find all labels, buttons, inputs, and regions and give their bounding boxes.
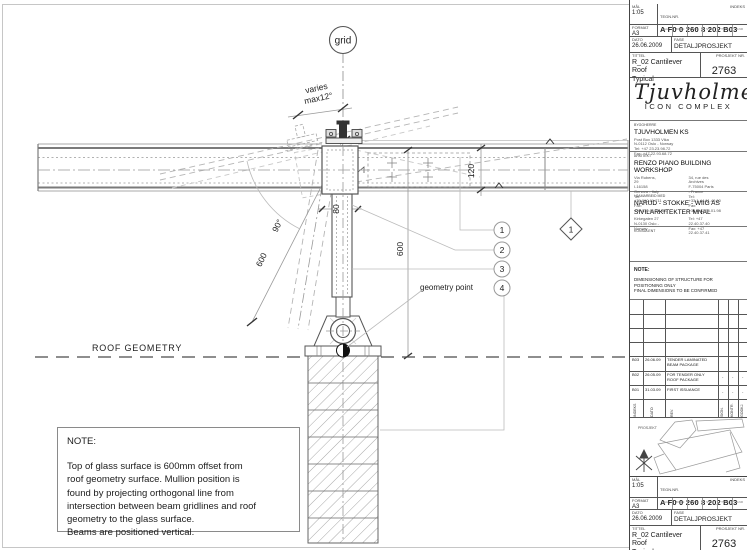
revision-index: B02 xyxy=(632,373,639,378)
scale-cell: MÅL 1:05 xyxy=(630,4,658,25)
grid-axis-label: 1 xyxy=(569,225,574,235)
dim-600-vertical xyxy=(404,147,412,359)
grid-axis-diamond: 1 xyxy=(560,218,582,240)
roof-geometry-label: ROOF GEOMETRY xyxy=(92,343,182,353)
glass-clamp xyxy=(326,121,362,144)
project-no-label: PROSJEKT NR. xyxy=(703,527,745,532)
code-cells: FAG BYGN ETG SYST TYPE LNR xyxy=(658,25,747,37)
revision-table: B03 26.06.09 TENDER LAMINATED BEAM PACKA… xyxy=(630,300,747,418)
index-label: INDEKS xyxy=(730,5,745,10)
rev-header-kontr: KONTR. xyxy=(730,400,734,417)
rev-header-dato: DATO xyxy=(650,400,654,417)
logo-wordmark: Tjuvholmen xyxy=(634,80,743,104)
revision-sign: - xyxy=(722,375,723,380)
code-label: LNR xyxy=(733,498,747,509)
revision-date: 26.05.09 xyxy=(645,373,661,378)
title-cell: TITTEL R_02 Cantilever Roof Typical xyxy=(630,526,701,550)
geometry-point-marker xyxy=(337,344,350,357)
code-label: SYST xyxy=(703,498,718,509)
callout-3: 3 xyxy=(494,261,510,277)
callout-1: 1 xyxy=(494,222,510,238)
site-plan: PROSJEKT xyxy=(630,418,747,476)
callout-2: 2 xyxy=(494,242,510,258)
note-line: roof geometry surface. Mullion position … xyxy=(67,473,290,486)
collaborator-name: NARUD - STOKKE - WIIG AS xyxy=(634,200,743,207)
callout-4-label: 4 xyxy=(500,283,505,293)
code-label: BYGN xyxy=(673,25,688,36)
date-value: 26.06.2009 xyxy=(632,516,669,522)
project-no-cell: PROSJEKT NR. 2763 xyxy=(701,53,747,77)
date-cell: DATO 26.06.2009 xyxy=(630,510,672,526)
drawing-no-cell: TEGN.NR. INDEKS A F0 0 260 8 202 B03 xyxy=(658,4,747,25)
project-number: 2763 xyxy=(703,538,745,550)
tb-note-line: FINAL DIMENSIONS TO BE CONFIRMED xyxy=(634,288,743,294)
code-label: TYPE xyxy=(718,25,733,36)
logo-block: Tjuvholmen ICON COMPLEX xyxy=(630,77,747,121)
project-number: 2763 xyxy=(703,65,745,77)
collaborator-name-2: SIVILARKITEKTER MNAL xyxy=(634,209,743,216)
phase-cell: FASE DETALJPROSJEKT xyxy=(672,510,747,526)
date-value: 26.06.2009 xyxy=(632,43,669,49)
client-section: BYGGHERRE TJUVHOLMEN KS Post Box 1333 Vi… xyxy=(630,121,747,152)
scale-value: 1:05 xyxy=(632,10,655,16)
revision-desc: FOR TENDER ONLY ROOF PACKAGE xyxy=(667,373,717,382)
client-label: BYGGHERRE xyxy=(634,123,743,128)
tb-note-title: NOTE: xyxy=(634,267,743,273)
title-cell: TITTEL R_02 Cantilever Roof Typical xyxy=(630,53,701,77)
phase-value: DETALJPROSJEKT xyxy=(674,43,745,50)
ghost-clamp xyxy=(280,120,324,150)
format-cell: FORMAT A3 xyxy=(630,25,658,37)
revision-desc: TENDER LAMINATED BEAM PACKAGE xyxy=(667,358,717,367)
code-label: TYPE xyxy=(718,498,733,509)
revision-date: 31.03.09 xyxy=(645,388,661,393)
rev-header-rev: REV. xyxy=(670,400,674,417)
callout-2-label: 2 xyxy=(500,245,505,255)
title-block: MÅL 1:05 TEGN.NR. INDEKS A F0 0 260 8 20… xyxy=(629,0,747,550)
dim-600-vertical-label: 600 xyxy=(395,242,405,256)
dim-600-incline-label: 600 xyxy=(254,251,269,268)
phase-value: DETALJPROSJEKT xyxy=(674,516,745,523)
code-label: BYGN xyxy=(673,498,688,509)
sheet-title-line1: R_02 Cantilever Roof xyxy=(632,59,698,76)
note-line: found by projecting orthogonal line from xyxy=(67,487,290,500)
geometry-point-label: geometry point xyxy=(420,283,474,292)
code-label: ETG xyxy=(688,498,703,509)
dim-120-label: 120 xyxy=(466,164,476,178)
revision-desc: FIRST ISSUANCE xyxy=(667,388,717,393)
phase-cell: FASE DETALJPROSJEKT xyxy=(672,37,747,53)
logo-subtitle: ICON COMPLEX xyxy=(634,102,743,111)
rev-header-indeks: INDEKS xyxy=(633,400,637,417)
consultant-section: KONSULENT xyxy=(630,227,747,262)
callout-leaders xyxy=(347,157,571,430)
revision-date: 26.06.09 xyxy=(645,358,661,363)
format-value: A3 xyxy=(632,31,655,37)
date-cell: DATO 26.06.2009 xyxy=(630,37,672,53)
rev-header-sign: SIGN. xyxy=(720,400,724,417)
collaborator-section: I SAMARBEID MED NARUD - STOKKE - WIIG AS… xyxy=(630,192,747,227)
collaborator-label: I SAMARBEID MED xyxy=(634,194,743,199)
code-label: LNR xyxy=(733,25,747,36)
revision-sign: - xyxy=(722,390,723,395)
drawing-no-cell: TEGN.NR. INDEKS A F0 0 260 8 202 B03 xyxy=(658,477,747,498)
note-line: intersection between beam gridlines and … xyxy=(67,500,290,513)
revision-godkj: - xyxy=(742,375,743,380)
architect-name: RENZO PIANO BUILDING WORKSHOP xyxy=(634,160,743,174)
revision-kontr: - xyxy=(732,375,733,380)
note-line: Beams are positioned vertical. xyxy=(67,526,290,539)
revision-godkj: - xyxy=(742,390,743,395)
drawing-no-label: TEGN.NR. xyxy=(660,487,679,492)
beam-left xyxy=(38,144,322,191)
consultant-label: KONSULENT xyxy=(634,229,743,234)
revision-index: B03 xyxy=(632,358,639,363)
north-arrow-icon xyxy=(636,450,652,472)
code-label: FAG xyxy=(658,25,673,36)
varies-dim xyxy=(288,104,352,119)
format-value: A3 xyxy=(632,504,655,510)
project-no-cell: PROSJEKT NR. 2763 xyxy=(701,526,747,550)
code-label: FAG xyxy=(658,498,673,509)
title-block-foot: MÅL 1:05 TEGN.NR. INDEKS A F0 0 260 8 20… xyxy=(630,476,747,550)
beam-right xyxy=(358,140,628,191)
scale-value: 1:05 xyxy=(632,483,655,489)
code-cells: FAG BYGN ETG SYST TYPE LNR xyxy=(658,498,747,510)
callout-1-label: 1 xyxy=(500,225,505,235)
grid-bubble-label: grid xyxy=(335,36,352,47)
map-label: PROSJEKT xyxy=(638,426,657,430)
architect-section: ARKITEKT RENZO PIANO BUILDING WORKSHOP V… xyxy=(630,152,747,192)
note-line: Top of glass surface is 600mm offset fro… xyxy=(67,460,290,473)
angle-90-label: 90° xyxy=(270,218,285,234)
scale-cell: MÅL 1:05 xyxy=(630,477,658,498)
drawing-no-label: TEGN.NR. xyxy=(660,14,679,19)
index-label: INDEKS xyxy=(730,478,745,483)
revision-index: B01 xyxy=(632,388,639,393)
rev-header-godkj: GODKJ. xyxy=(740,400,744,417)
dim-80-label: 80 xyxy=(331,204,341,214)
sheet-title-line1: R_02 Cantilever Roof xyxy=(632,532,698,549)
note-line: geometry to the glass surface. xyxy=(67,513,290,526)
code-label: ETG xyxy=(688,25,703,36)
client-name: TJUVHOLMEN KS xyxy=(634,129,743,136)
callout-3-label: 3 xyxy=(500,264,505,274)
title-block-head: MÅL 1:05 TEGN.NR. INDEKS A F0 0 260 8 20… xyxy=(630,4,747,77)
architect-label: ARKITEKT xyxy=(634,154,743,159)
drawing-note-box: NOTE: Top of glass surface is 600mm offs… xyxy=(57,427,300,532)
code-label: SYST xyxy=(703,25,718,36)
project-no-label: PROSJEKT NR. xyxy=(703,54,745,59)
format-cell: FORMAT A3 xyxy=(630,498,658,510)
note-title: NOTE: xyxy=(67,435,290,448)
revision-kontr: - xyxy=(732,390,733,395)
callout-4: 4 xyxy=(494,280,510,296)
tb-note-section: NOTE: DIMENSIONING OF STRUCTURE FOR POSI… xyxy=(630,262,747,300)
drawing-sheet: 1 2 3 4 1 grid varies max12° 120 80 600 … xyxy=(0,0,747,550)
